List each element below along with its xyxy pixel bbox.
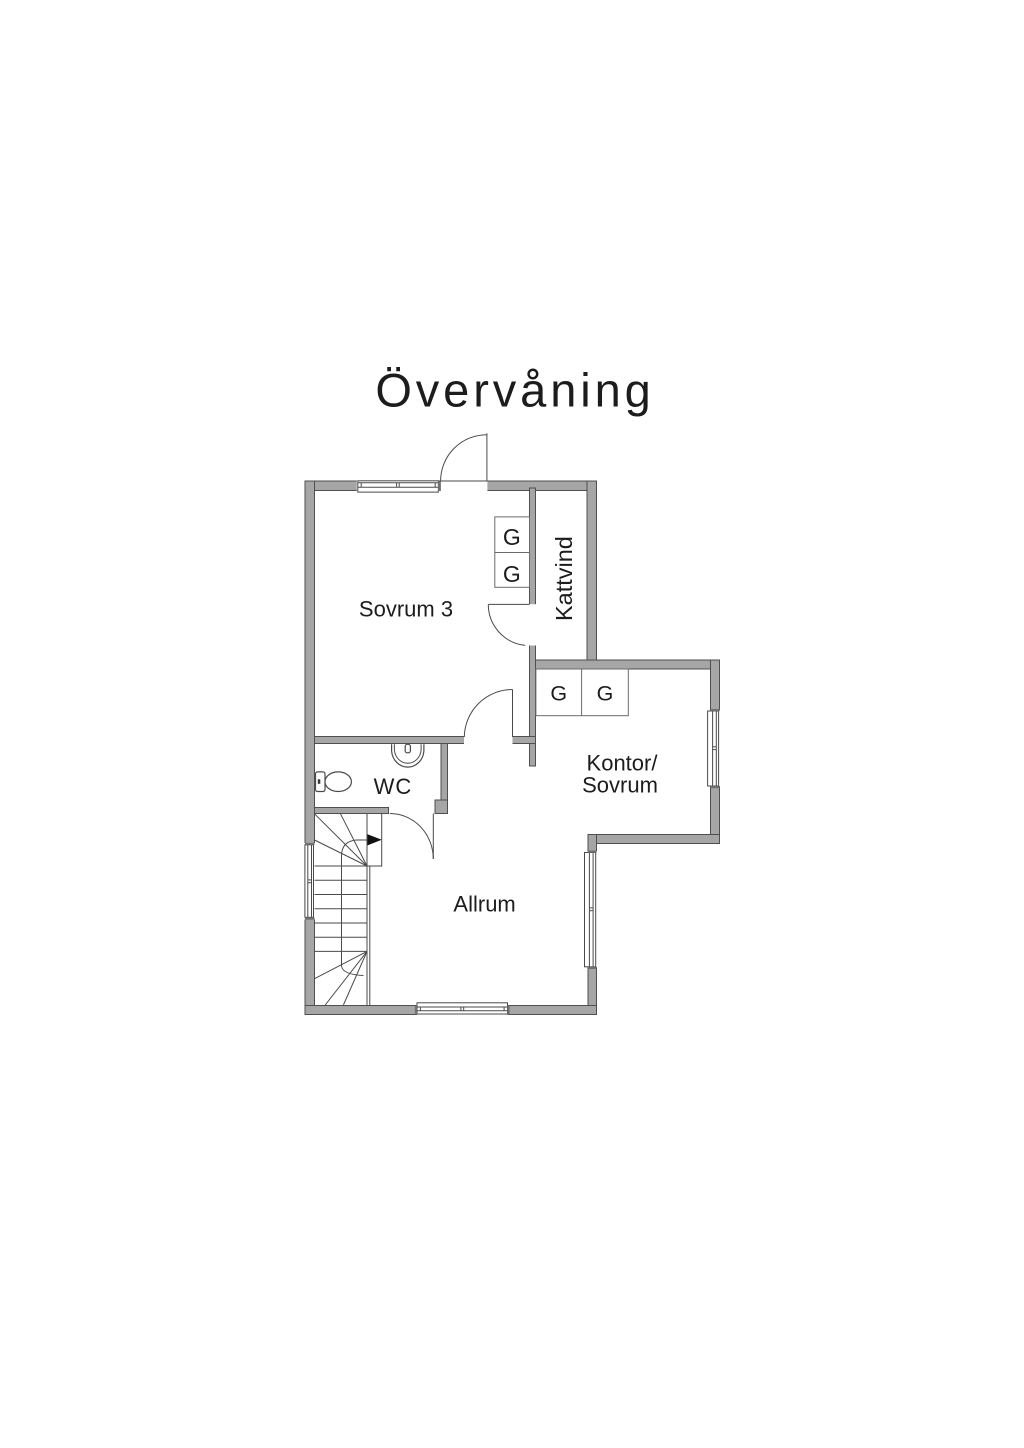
svg-text:Allrum: Allrum [453, 891, 515, 916]
svg-text:G: G [550, 682, 567, 706]
svg-text:WC: WC [374, 774, 413, 799]
svg-text:G: G [597, 682, 614, 706]
svg-text:G: G [503, 524, 521, 550]
svg-text:G: G [503, 561, 521, 587]
svg-text:Kattvind: Kattvind [551, 536, 577, 621]
svg-text:Övervåning: Övervåning [375, 364, 654, 417]
svg-text:Sovrum 3: Sovrum 3 [359, 597, 453, 622]
svg-text:Sovrum: Sovrum [582, 772, 658, 797]
